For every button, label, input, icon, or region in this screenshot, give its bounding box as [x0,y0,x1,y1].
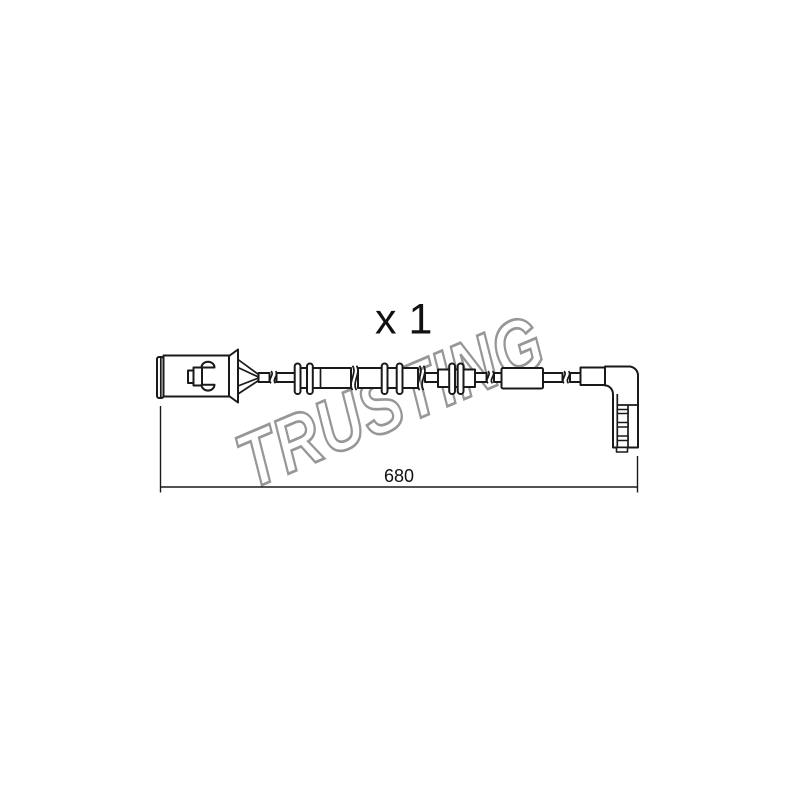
cable-segment [259,373,270,382]
right-angle-sensor-head [581,367,639,453]
head-rib [617,436,628,441]
connector-latch [194,368,203,386]
head-rib [617,410,628,414]
grommet-ring [397,364,403,395]
product-drawing-page: TRUSTING [0,0,800,800]
grommet-ring [382,364,388,395]
connector-key-top [202,362,215,368]
head-foot [617,448,628,453]
protective-sleeve [502,368,544,389]
dimension-value: 680 [384,466,414,486]
grommet-ring [307,364,313,395]
cable-sheath [297,368,351,388]
cable-segment [494,373,502,382]
connector-flange [229,350,238,403]
cable-segment [475,373,487,382]
quantity-label: x 1 [375,296,432,344]
cable-segment [570,373,581,382]
grommet-ring [449,364,455,395]
head-cable-entry [581,368,606,386]
grommet-ring [295,364,301,395]
cable-segment [543,373,563,382]
connector-key-bottom [202,385,215,391]
grommet-collar [438,370,475,388]
head-rib [617,423,628,428]
connector-plug [157,350,259,403]
cable-segment [425,373,438,382]
wear-sensor-diagram: TRUSTING [0,0,800,800]
terminal-wires [238,360,259,395]
grommet-ring [458,364,464,395]
